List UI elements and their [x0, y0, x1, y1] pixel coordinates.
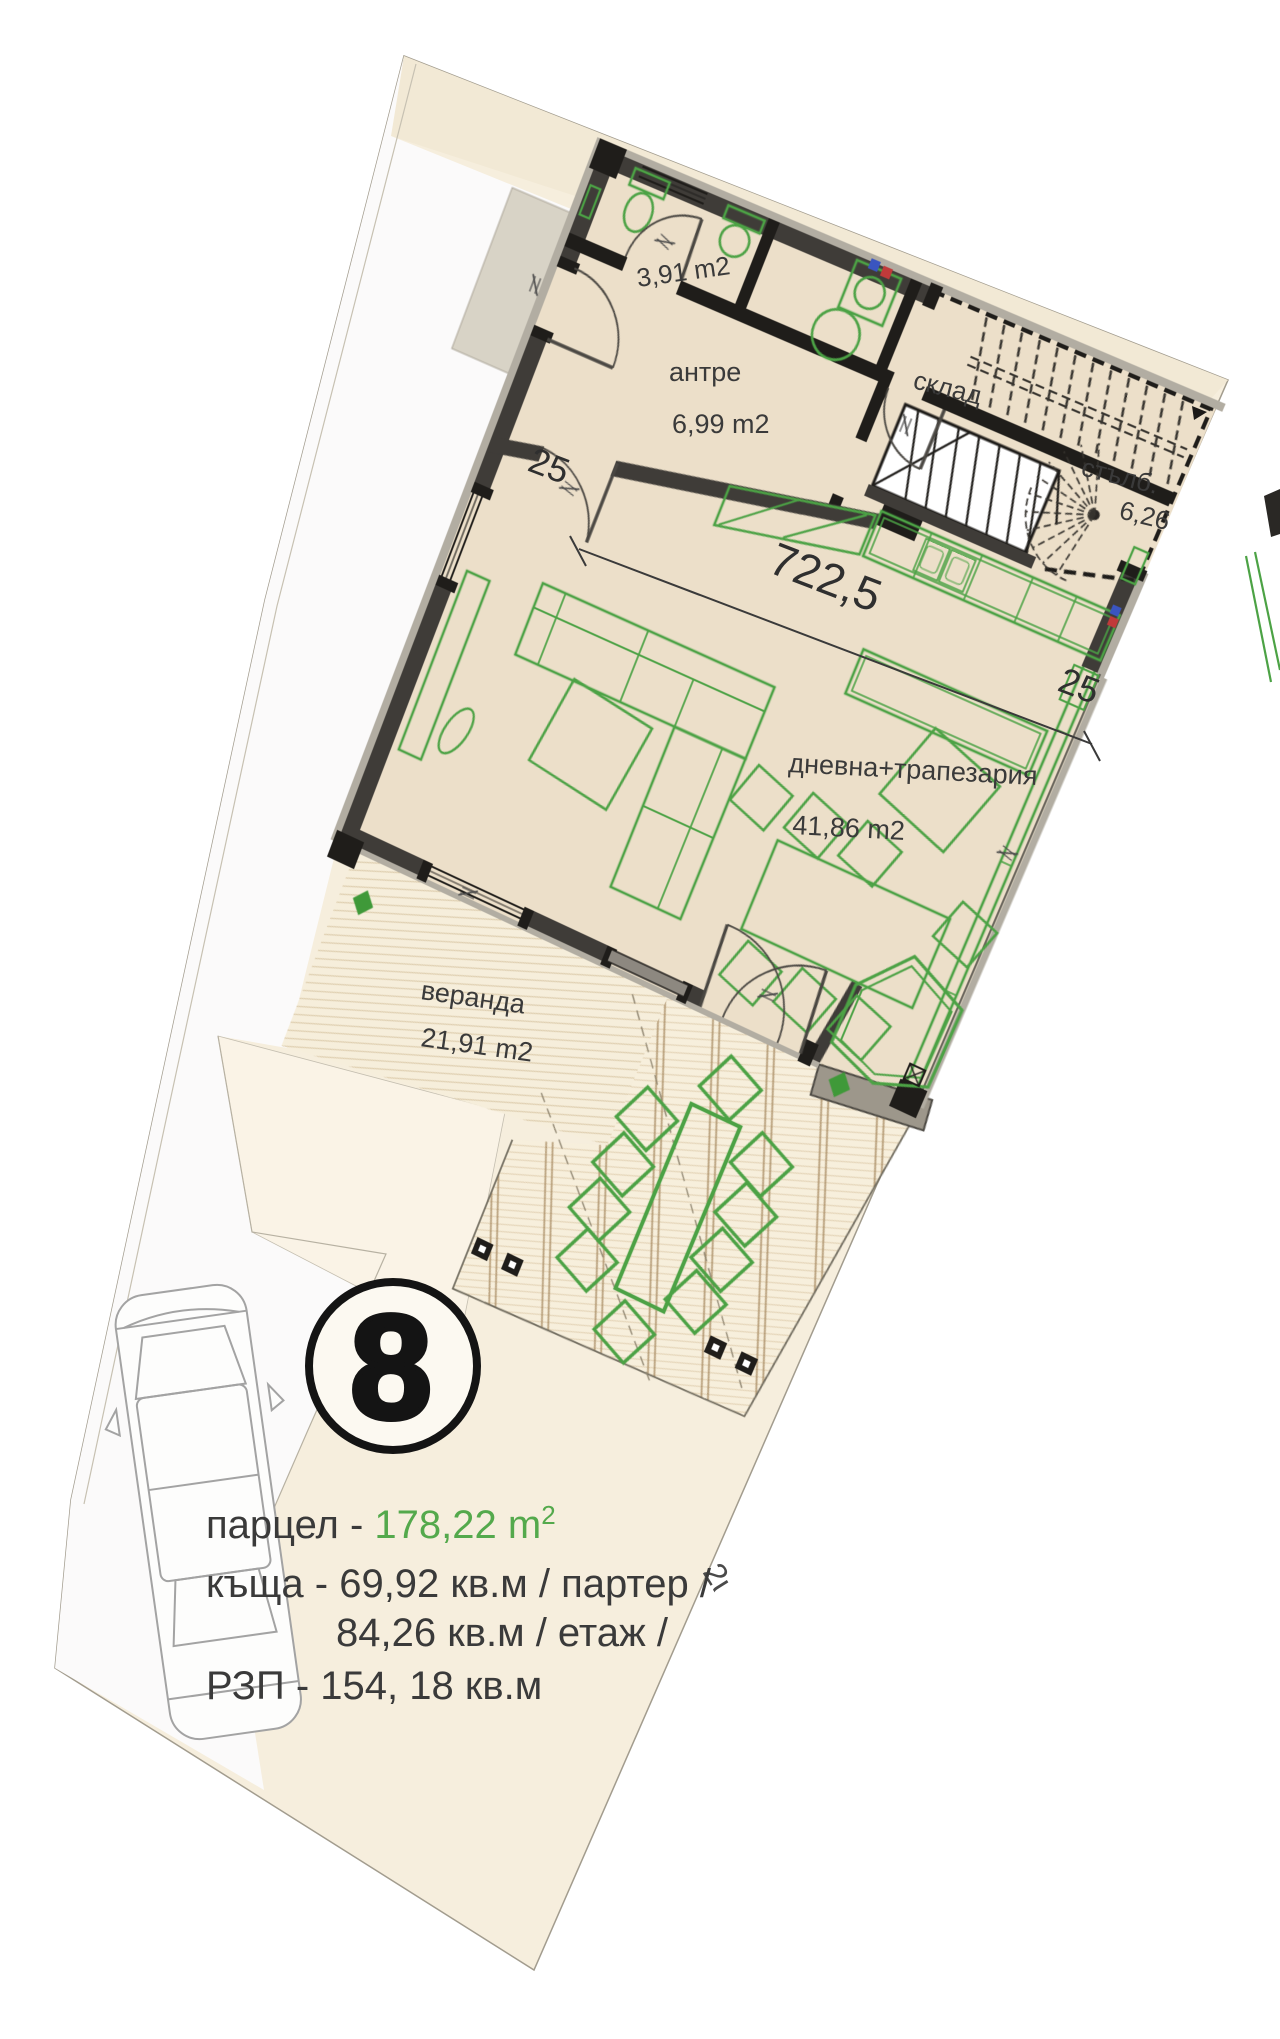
svg-text:стълб.: стълб.	[1079, 452, 1162, 500]
svg-text:6,26: 6,26	[1117, 495, 1173, 536]
svg-text:25: 25	[523, 439, 575, 492]
svg-text:25: 25	[1053, 659, 1105, 712]
svg-text:41,86 m2: 41,86 m2	[792, 810, 906, 846]
svg-text:антре: антре	[669, 357, 741, 387]
svg-text:дневна+трапезария: дневна+трапезария	[788, 748, 1039, 791]
svg-text:парцел - 178,22 m2: парцел - 178,22 m2	[206, 1500, 556, 1547]
svg-text:къща - 69,92 кв.м / партер /: къща - 69,92 кв.м / партер /	[206, 1562, 712, 1606]
svg-text:веранда: веранда	[419, 975, 528, 1019]
svg-text:склад: склад	[911, 365, 986, 411]
svg-text:6,99 m2: 6,99 m2	[672, 409, 770, 439]
svg-text:3,91 m2: 3,91 m2	[635, 250, 732, 293]
svg-text:722,5: 722,5	[763, 532, 889, 622]
svg-text:84,26 кв.м / етаж /: 84,26 кв.м / етаж /	[336, 1611, 669, 1655]
svg-text:8: 8	[350, 1285, 432, 1450]
svg-text:21,91 m2: 21,91 m2	[419, 1022, 535, 1067]
svg-text:РЗП - 154, 18 кв.м: РЗП - 154, 18 кв.м	[206, 1664, 542, 1708]
